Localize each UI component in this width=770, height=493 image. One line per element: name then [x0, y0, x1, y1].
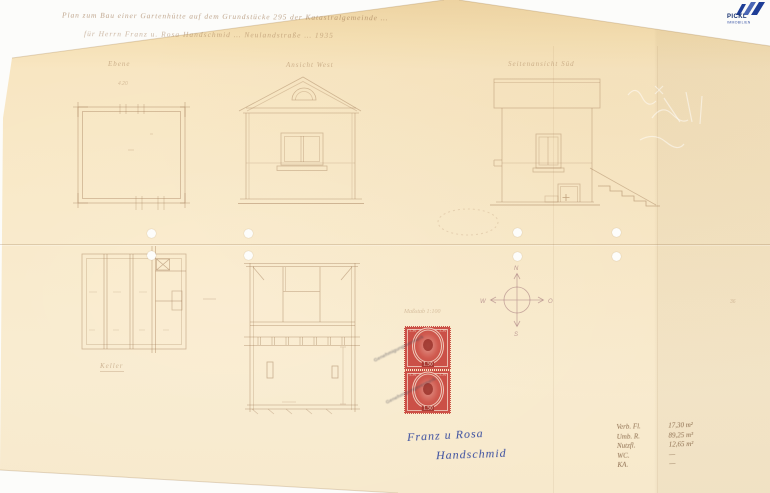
stamp-value: 1.50	[421, 406, 433, 411]
plan-dimension-label: 4.20	[118, 81, 128, 87]
side-elevation-drawing	[490, 79, 660, 206]
scale-note: Maßstab 1:100	[404, 309, 441, 315]
stats-value: —	[669, 460, 675, 468]
pickl-immobilien-logo: PICKL IMMOBILIEN	[724, 1, 768, 29]
cellar-plan-drawing	[82, 246, 216, 353]
compass-n: N	[514, 266, 519, 272]
stats-value: 17,30 m²	[668, 421, 693, 430]
stats-value: 12,65 m²	[669, 440, 694, 449]
building-stats-table: Verb. Fl. 17,30 m² Umb. R. 89,25 m³ Nutz…	[616, 419, 767, 471]
plan-title-line2: für Herrn Franz u. Rosa Handschmid … Neu…	[84, 29, 334, 40]
hole-punch	[513, 252, 522, 261]
compass-e: O	[548, 299, 553, 305]
compass-s: S	[514, 332, 518, 338]
signature-line2: Handschmid	[436, 446, 507, 463]
floor-plan-label: Ebene	[108, 60, 131, 68]
front-elevation-drawing	[238, 77, 364, 204]
hole-punch	[244, 229, 253, 238]
stats-value: —	[669, 450, 675, 458]
stamp-corner-value: 1.50	[409, 329, 416, 332]
stats-value: 89,25 m³	[668, 431, 693, 440]
section-drawing	[244, 263, 360, 414]
logo-brand-text: PICKL	[727, 14, 747, 20]
logo-subtitle-text: IMMOBILIEN	[727, 21, 751, 25]
stamp-corner-value: 1.50	[409, 373, 416, 376]
hole-punch	[612, 228, 621, 237]
scanned-plan-document: 4.20	[0, 0, 770, 493]
hole-punch	[612, 252, 621, 261]
side-elevation-label: Seitenansicht Süd	[508, 60, 575, 68]
stamp-value: 1.50	[421, 362, 433, 367]
compass-w: W	[480, 299, 487, 305]
stamp-emblem-core	[423, 339, 433, 351]
faint-erased-circle	[438, 209, 498, 235]
stats-label: KA.	[617, 460, 667, 471]
paper-edge-lines	[0, 0, 770, 493]
erased-scratches	[628, 86, 702, 148]
compass-rose	[491, 274, 544, 327]
compass-letters: N S W O	[480, 266, 553, 338]
front-elevation-label: Ansicht West	[286, 61, 334, 69]
cellar-plan-label: Keller	[100, 362, 124, 372]
pencil-linework: 4.20	[0, 0, 770, 493]
floor-plan-drawing	[73, 102, 190, 210]
hole-punch	[244, 251, 253, 260]
hole-punch	[147, 251, 156, 260]
hole-punch	[513, 228, 522, 237]
right-edge-mark: 36	[730, 299, 736, 305]
hole-punch	[147, 229, 156, 238]
